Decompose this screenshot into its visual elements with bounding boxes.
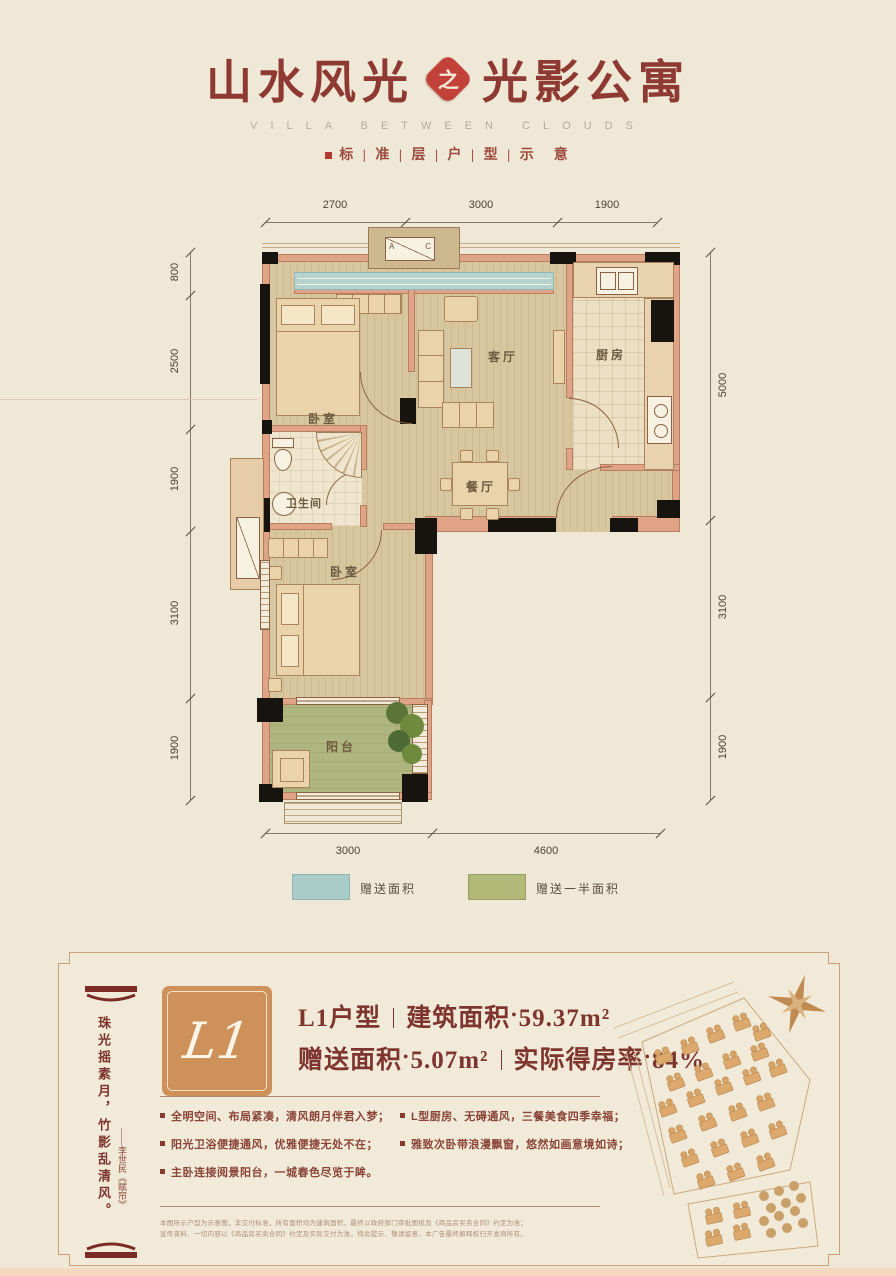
wardrobe: [268, 538, 328, 558]
dim-label: 1900: [169, 723, 181, 773]
room-label-bath: 卫生间: [286, 495, 322, 511]
entry-opening: [556, 516, 612, 532]
dim-label: 1900: [717, 722, 729, 772]
sink: [596, 267, 638, 295]
kitchen-counter-top: [573, 262, 674, 298]
column: [610, 518, 638, 532]
panel-corner: [58, 1254, 70, 1266]
badge-text: L1: [180, 1012, 253, 1070]
gift-area-label: 赠送面积: [298, 1047, 402, 1074]
blanket-line: [303, 585, 304, 675]
wall: [566, 448, 573, 470]
build-area-value: 59.37m²: [519, 1005, 611, 1032]
building-cluster: [653, 1012, 787, 1247]
dim-label: 3100: [169, 588, 181, 638]
chair: [486, 508, 499, 520]
column: [488, 518, 556, 532]
chair: [486, 450, 499, 462]
coffee-table: [450, 348, 472, 388]
road-line: [626, 1051, 664, 1196]
feature-item: 全明空间、布局紧凑，清风朗月伴君入梦；: [160, 1108, 400, 1124]
bottom-strip: [0, 1268, 896, 1276]
chair: [440, 478, 452, 491]
wall: [360, 505, 367, 527]
gift-area-value: 5.07m²: [410, 1047, 488, 1074]
plant: [382, 700, 426, 772]
ac-label-a: A: [389, 242, 394, 251]
bed: [276, 298, 360, 416]
zhi-seal-icon: 之: [423, 54, 474, 105]
room-label-living: 客厅: [488, 348, 518, 365]
burner: [654, 424, 668, 438]
poster-page: 山水风光 之 光影公寓 VILLA BETWEEN CLOUDS 标 | 准 |…: [0, 0, 896, 1276]
pillow: [281, 635, 299, 667]
column: [415, 518, 437, 554]
chair: [508, 478, 520, 491]
sofa: [418, 330, 444, 408]
dim-label: 2500: [169, 336, 181, 386]
burner: [654, 404, 668, 418]
parapet-line: [262, 247, 680, 248]
legend-swatch-gift: [292, 874, 350, 900]
pillow: [321, 305, 355, 325]
approx-dot: ●: [511, 1009, 517, 1019]
nightstand: [268, 566, 282, 580]
poem-attribution: ——李世民《赋帘》: [116, 1128, 129, 1238]
title-right: 光影公寓: [482, 46, 690, 112]
feature-row: 全明空间、布局紧凑，清风朗月伴君入梦； L型厨房、无碍通风，三餐美食四季幸福；: [160, 1108, 690, 1124]
divider-line: [160, 1206, 600, 1207]
divider-bar: [501, 1050, 502, 1070]
road-line: [614, 982, 734, 1028]
bed: [276, 584, 360, 676]
disclaimer: 本图所示户型为示意图，非交付标准，所有面积均为建筑面积，最终以政府部门审批图纸及…: [160, 1218, 610, 1240]
armchair: [444, 296, 478, 322]
bracket-ornament-top: [84, 984, 138, 1008]
compass-icon: [760, 967, 833, 1040]
laundry-station: [272, 750, 310, 788]
title-left: 山水风光: [206, 46, 414, 112]
bullet-icon: [160, 1113, 165, 1118]
column: [257, 698, 283, 722]
subtitle-chinese: 标 | 准 | 层 | 户 | 型 | 示 意: [0, 144, 896, 164]
wall: [262, 254, 680, 262]
room-label-bedroom1: 卧室: [308, 410, 338, 427]
duct-hatch: [236, 517, 260, 579]
dim-label: 3000: [451, 199, 511, 211]
dim-line-right: [710, 252, 711, 800]
column: [262, 420, 272, 434]
wall: [408, 288, 415, 372]
blanket-line: [277, 331, 359, 332]
dim-label: 2700: [305, 199, 365, 211]
room-label-bedroom2: 卧室: [330, 563, 360, 580]
road-line: [634, 1048, 670, 1188]
bracket-ornament-bottom: [84, 1236, 138, 1260]
bullet-icon: [160, 1169, 165, 1174]
feature-item: 主卧连接阅景阳台，一城春色尽览于眸。: [160, 1164, 378, 1180]
sink-basin: [600, 272, 616, 290]
site-map: [612, 956, 848, 1262]
wall: [262, 523, 332, 530]
dim-label: 800: [169, 247, 181, 297]
dim-line-bottom: [265, 833, 660, 834]
dim-line-top: [265, 222, 657, 223]
bullet-icon: [400, 1113, 405, 1118]
exterior-duct: [230, 458, 264, 590]
pillow: [281, 593, 299, 625]
column: [262, 252, 278, 264]
disclaimer-line: 宣传资料、一切内容以《商品房买卖合同》约定及实际交付为准，特此提示、敬请留意，本…: [160, 1229, 610, 1240]
unit-badge: L1: [162, 986, 272, 1096]
column: [402, 774, 428, 802]
room-label-dining: 餐厅: [466, 478, 496, 495]
pillow: [281, 305, 315, 325]
page-title: 山水风光 之 光影公寓: [0, 46, 896, 112]
reference-line: [0, 399, 258, 400]
subtitle-english: VILLA BETWEEN CLOUDS: [0, 120, 896, 132]
feature-item: 阳光卫浴便捷通风，优雅便捷无处不在；: [160, 1136, 400, 1152]
dim-label: 3100: [717, 582, 729, 632]
room-label-balcony: 阳台: [326, 738, 356, 755]
divider-line: [160, 1096, 600, 1097]
ac-unit-icon: A C: [385, 237, 435, 261]
disclaimer-line: 本图所示户型为示意图，非交付标准，所有面积均为建筑面积，最终以政府部门审批图纸及…: [160, 1218, 610, 1229]
laundry-basin: [280, 758, 304, 782]
ac-platform: A C: [368, 227, 460, 269]
feature-item: 雅致次卧带浪漫飘窗，悠然如画意境如诗；: [400, 1136, 630, 1152]
dim-line-left: [190, 252, 191, 800]
room-label-kitchen: 厨房: [596, 346, 626, 363]
steps: [284, 802, 402, 824]
bay-window: [294, 272, 554, 290]
dim-label: 1900: [169, 454, 181, 504]
sink-basin: [618, 272, 634, 290]
column: [260, 284, 270, 384]
feature-row: 主卧连接阅景阳台，一城春色尽览于眸。: [160, 1164, 690, 1180]
window-line: [297, 284, 551, 285]
plant-leaf: [402, 744, 422, 764]
feature-list: 全明空间、布局紧凑，清风朗月伴君入梦； L型厨房、无碍通风，三餐美食四季幸福； …: [160, 1108, 690, 1192]
sofa-two: [442, 402, 494, 428]
build-area-label: 建筑面积: [406, 1005, 510, 1032]
dim-label: 4600: [516, 845, 576, 857]
balcony-window-band: [296, 792, 400, 800]
chair: [460, 450, 473, 462]
column: [657, 500, 680, 518]
ac-label-c: C: [425, 242, 431, 251]
bullet-icon: [160, 1141, 165, 1146]
red-square-icon: [325, 152, 332, 159]
bedroom2-window: [260, 560, 270, 630]
dim-label: 5000: [717, 360, 729, 410]
fridge: [651, 300, 674, 342]
window-line: [297, 278, 551, 279]
parcel-boundary: [642, 998, 810, 1194]
unit-info-line1: L1户型建筑面积●59.37m²: [298, 998, 610, 1034]
legend-label-gift: 赠送面积: [360, 880, 416, 897]
legend-swatch-halfgift: [468, 874, 526, 900]
parapet-line: [262, 243, 680, 244]
bullet-icon: [400, 1141, 405, 1146]
divider-bar: [393, 1008, 394, 1028]
feature-row: 阳光卫浴便捷通风，优雅便捷无处不在； 雅致次卧带浪漫飘窗，悠然如画意境如诗；: [160, 1136, 690, 1152]
legend-label-halfgift: 赠送一半面积: [536, 880, 620, 897]
dim-label: 1900: [577, 199, 637, 211]
toilet-tank: [272, 438, 294, 448]
panel-corner: [58, 952, 70, 964]
chair: [460, 508, 473, 520]
poem-text: 珠光摇素月，竹影乱清风。: [94, 1016, 113, 1226]
wall: [566, 258, 573, 398]
feature-item: L型厨房、无碍通风，三餐美食四季幸福；: [400, 1108, 625, 1124]
nightstand: [268, 678, 282, 692]
approx-dot: ●: [403, 1051, 409, 1061]
unit-name: L1户型: [298, 1005, 381, 1032]
tv-cabinet: [553, 330, 565, 384]
stove: [647, 396, 672, 444]
dim-label: 3000: [318, 845, 378, 857]
